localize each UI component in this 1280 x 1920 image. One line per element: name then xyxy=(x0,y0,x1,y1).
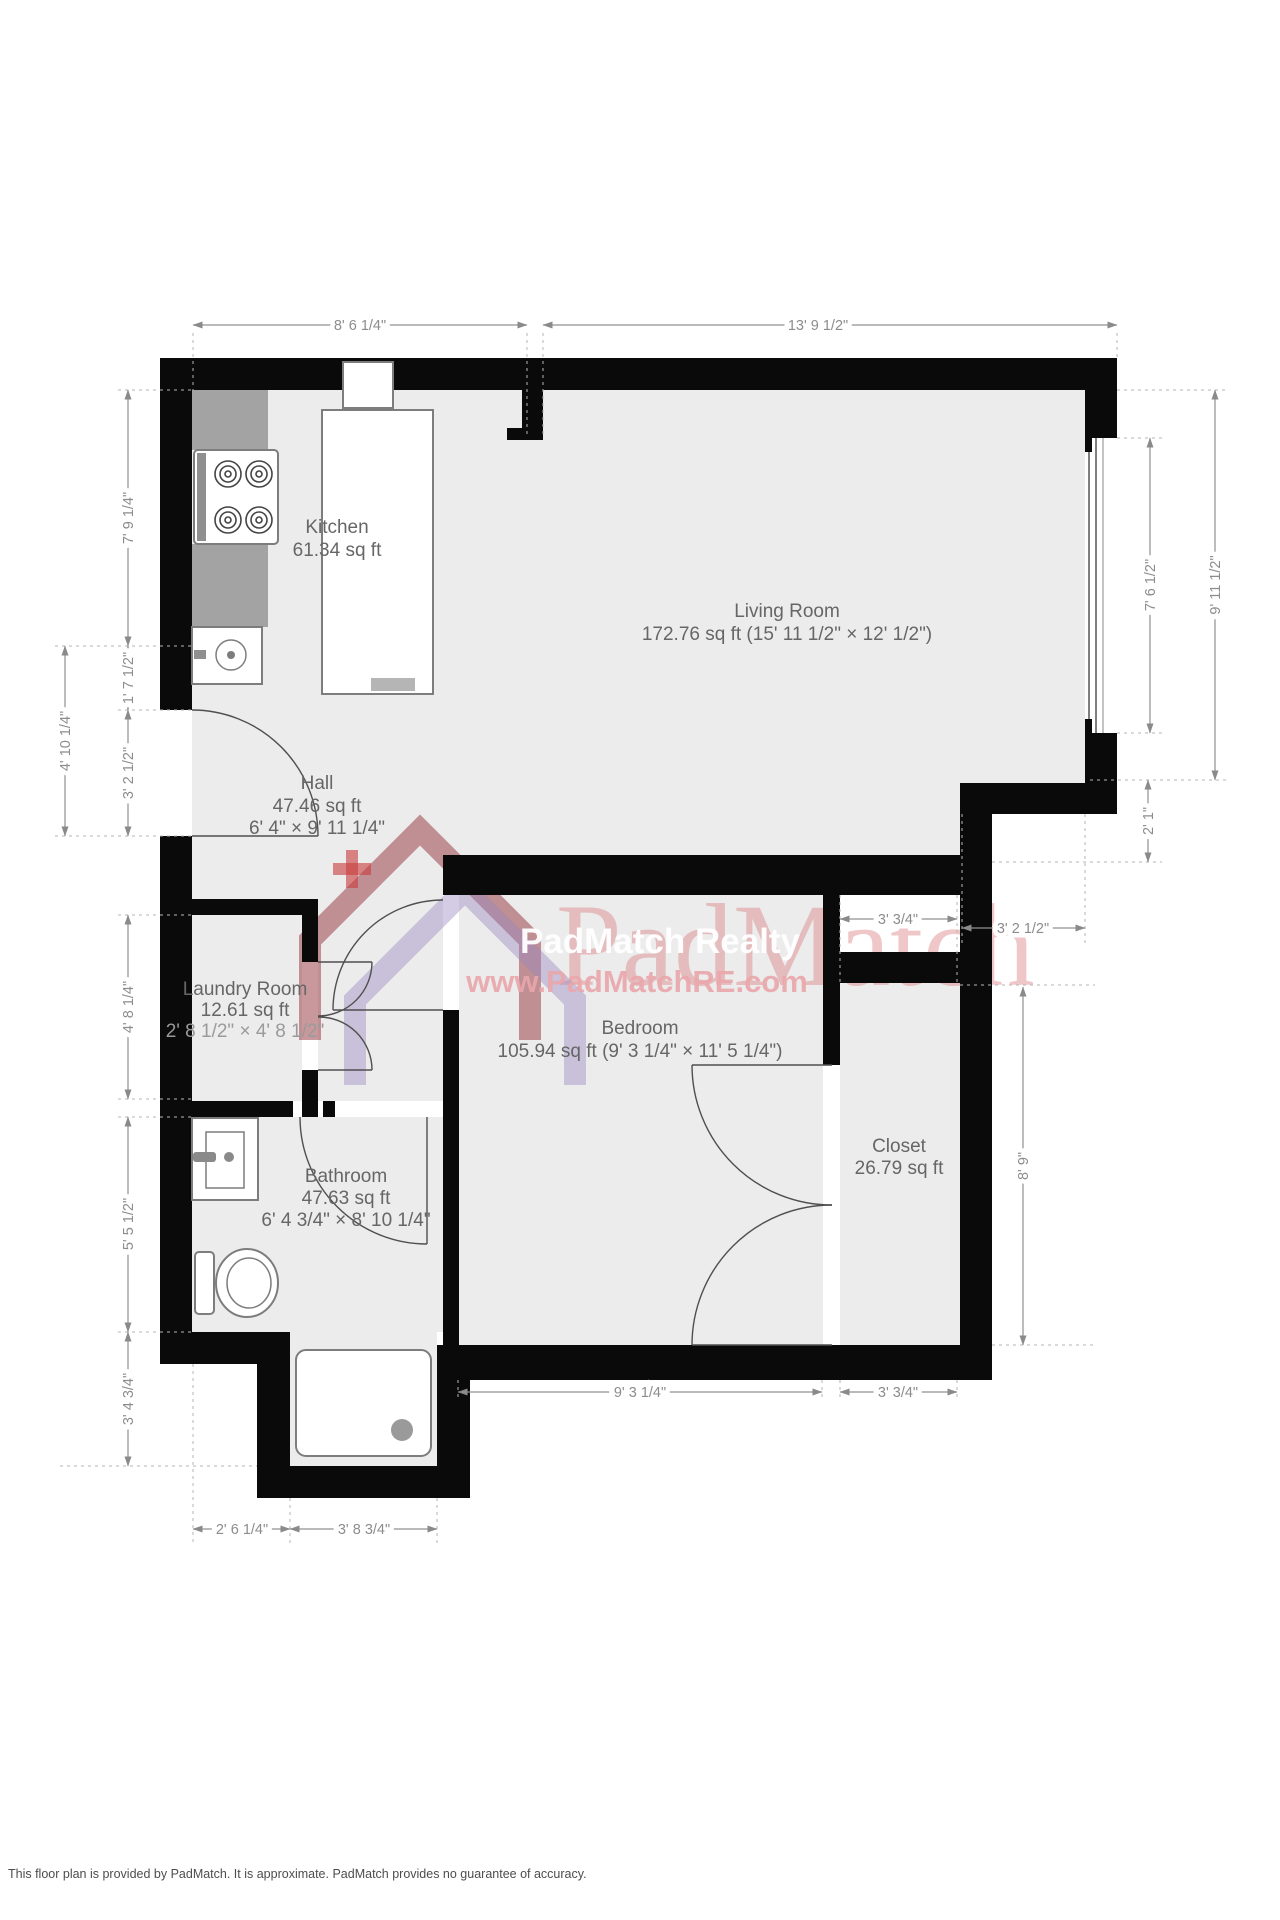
svg-text:26.79 sq ft: 26.79 sq ft xyxy=(855,1158,944,1179)
dim-nook-width: 3' 3/4" xyxy=(878,912,918,928)
dim-right-living: 9' 11 1/2" xyxy=(1208,555,1224,614)
dim-top-living: 13' 9 1/2" xyxy=(788,318,848,334)
shower-tray-icon xyxy=(296,1350,431,1456)
dim-left-laundry: 4' 8 1/4" xyxy=(121,981,137,1033)
dim-right-offset: 3' 2 1/2" xyxy=(997,921,1049,937)
svg-text:172.76 sq ft (15' 11 1/2" × 12: 172.76 sq ft (15' 11 1/2" × 12' 1/2") xyxy=(642,624,932,645)
dim-top-kitchen: 8' 6 1/4" xyxy=(334,318,386,334)
counter-lower xyxy=(192,544,268,627)
kitchen-sink-icon xyxy=(192,627,262,684)
svg-text:Bedroom: Bedroom xyxy=(601,1018,678,1039)
svg-text:Living Room: Living Room xyxy=(734,601,840,622)
svg-text:61.34 sq ft: 61.34 sq ft xyxy=(293,540,382,561)
dim-bottom-toilet: 2' 6 1/4" xyxy=(216,1522,268,1538)
island-chair xyxy=(343,362,393,408)
svg-text:2' 8 1/2" × 4' 8 1/2": 2' 8 1/2" × 4' 8 1/2" xyxy=(166,1021,325,1042)
living-room-window xyxy=(1085,438,1117,733)
dim-right-window: 7' 6 1/2" xyxy=(1143,559,1159,611)
svg-text:Laundry Room: Laundry Room xyxy=(183,979,308,1000)
svg-text:6' 4 3/4" × 8' 10 1/4": 6' 4 3/4" × 8' 10 1/4" xyxy=(261,1210,430,1231)
dim-closet-height: 8' 9" xyxy=(1016,1152,1032,1180)
dim-left-entry-total: 4' 10 1/4" xyxy=(58,711,74,771)
dim-left-stub: 1' 7 1/2" xyxy=(121,652,137,704)
floor-plan-canvas: PadMatch PadMatch Realty www.PadMatchRE.… xyxy=(0,0,1280,1920)
watermark-realty-text: PadMatch Realty xyxy=(520,922,801,961)
dim-bottom-bedroom: 9' 3 1/4" xyxy=(614,1385,666,1401)
dim-bottom-closet: 3' 3/4" xyxy=(878,1385,918,1401)
svg-text:47.46 sq ft: 47.46 sq ft xyxy=(273,796,362,817)
stove-icon xyxy=(194,450,278,544)
svg-text:Hall: Hall xyxy=(301,773,334,794)
toilet-icon xyxy=(195,1249,278,1317)
footer-disclaimer: This floor plan is provided by PadMatch.… xyxy=(8,1867,587,1881)
dim-bottom-shower: 3' 8 3/4" xyxy=(338,1522,390,1538)
svg-text:47.63 sq ft: 47.63 sq ft xyxy=(302,1188,391,1209)
floor-plan-page: PadMatch PadMatch Realty www.PadMatchRE.… xyxy=(0,0,1280,1920)
dim-left-kitchen: 7' 9 1/4" xyxy=(121,492,137,544)
dim-left-shower: 3' 4 3/4" xyxy=(121,1373,137,1425)
svg-text:Closet: Closet xyxy=(872,1136,927,1157)
watermark-url-text: www.PadMatchRE.com xyxy=(465,964,808,999)
svg-text:105.94 sq ft (9' 3 1/4" × 11': 105.94 sq ft (9' 3 1/4" × 11' 5 1/4") xyxy=(498,1041,783,1062)
dim-left-door: 3' 2 1/2" xyxy=(121,747,137,799)
dim-right-step: 2' 1" xyxy=(1141,807,1157,835)
svg-text:12.61 sq ft: 12.61 sq ft xyxy=(201,1000,290,1021)
svg-text:Kitchen: Kitchen xyxy=(305,517,368,538)
svg-text:Bathroom: Bathroom xyxy=(305,1166,387,1187)
counter-upper xyxy=(192,390,268,450)
svg-text:6' 4" × 9' 11 1/4": 6' 4" × 9' 11 1/4" xyxy=(249,818,385,839)
vanity-sink-icon xyxy=(192,1118,258,1200)
dim-left-bathroom: 5' 5 1/2" xyxy=(121,1198,137,1250)
